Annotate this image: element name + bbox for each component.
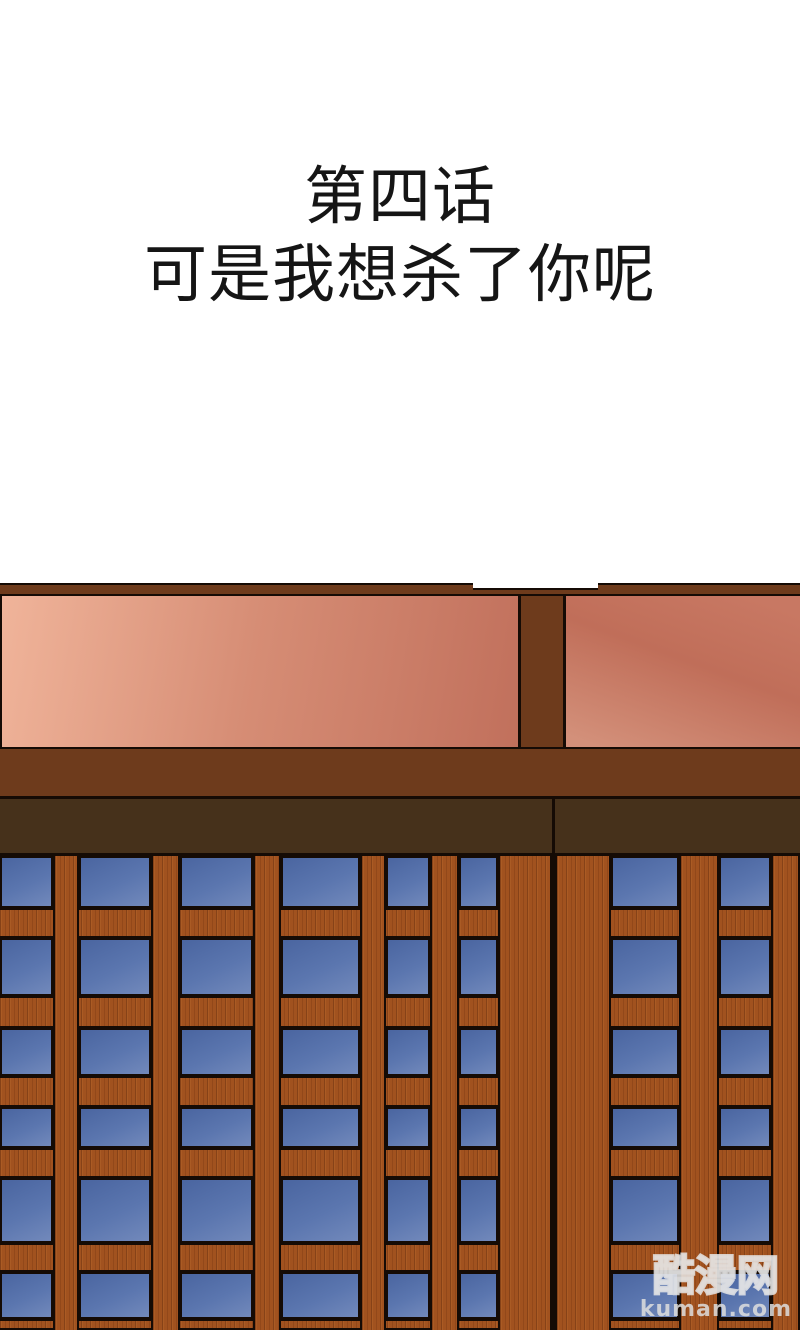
lattice-pane [281, 1028, 360, 1076]
lattice-pane [386, 856, 430, 908]
lintel-notch [473, 583, 598, 590]
lattice-pane [459, 1107, 498, 1148]
lattice-mullion [151, 856, 180, 1330]
wall-post [518, 596, 566, 747]
lattice-pane [79, 938, 151, 996]
lattice-pane [611, 1028, 679, 1076]
lattice-pane [180, 1178, 253, 1243]
lattice-pane [180, 856, 253, 908]
lattice-pane [386, 1178, 430, 1243]
lattice-pane [79, 1028, 151, 1076]
crossbeam [0, 747, 800, 799]
lattice-mullion [253, 856, 281, 1330]
door-left [0, 856, 552, 1330]
lattice-mullion [430, 856, 459, 1330]
lattice-pane [719, 938, 771, 996]
door-divider-line [552, 799, 555, 1330]
lattice-pane [611, 856, 679, 908]
lattice-pane [386, 938, 430, 996]
wall-panel-right [566, 596, 800, 747]
lattice-pane [611, 1178, 679, 1243]
lattice-pane [459, 1028, 498, 1076]
lattice-pane [0, 1028, 53, 1076]
lattice-pane [386, 1028, 430, 1076]
lattice-pane [719, 1107, 771, 1148]
door-right [555, 856, 800, 1330]
lattice-pane [79, 1107, 151, 1148]
lattice-pane [719, 1028, 771, 1076]
lattice-mullion [53, 856, 79, 1330]
lattice-pane [719, 1272, 771, 1319]
lattice-pane [0, 1178, 53, 1243]
lattice-pane [180, 1028, 253, 1076]
lattice-pane [79, 1178, 151, 1243]
lattice-pane [459, 1272, 498, 1319]
lattice-pane [459, 1178, 498, 1243]
lattice-pane [281, 1107, 360, 1148]
lattice-pane [180, 1272, 253, 1319]
door-stile [498, 856, 552, 1330]
lattice-pane [459, 938, 498, 996]
comic-page: 第四话 可是我想杀了你呢 酷漫网 kuman.com [0, 0, 800, 1330]
lattice-pane [79, 856, 151, 908]
lattice-pane [281, 1178, 360, 1243]
building-illustration [0, 0, 800, 1330]
lintel-beam [0, 583, 800, 596]
lattice-pane [459, 856, 498, 908]
door-stile [771, 856, 800, 1330]
lattice-pane [386, 1107, 430, 1148]
lattice-pane [180, 1107, 253, 1148]
lattice-pane [611, 1272, 679, 1319]
lattice-pane [719, 856, 771, 908]
lattice-pane [0, 1272, 53, 1319]
lattice-pane [0, 1107, 53, 1148]
lattice-pane [0, 938, 53, 996]
lattice-pane [79, 1272, 151, 1319]
door-stile [555, 856, 611, 1330]
lattice-pane [0, 856, 53, 908]
transom-band [0, 799, 800, 856]
lattice-pane [611, 1107, 679, 1148]
lattice-pane [180, 938, 253, 996]
lattice-pane [719, 1178, 771, 1243]
lattice-pane [281, 938, 360, 996]
wall-panel-left [0, 596, 518, 747]
lattice-pane [611, 938, 679, 996]
lattice-pane [281, 1272, 360, 1319]
lattice-pane [281, 856, 360, 908]
lattice-mullion [360, 856, 386, 1330]
lattice-mullion [679, 856, 719, 1330]
lattice-pane [386, 1272, 430, 1319]
